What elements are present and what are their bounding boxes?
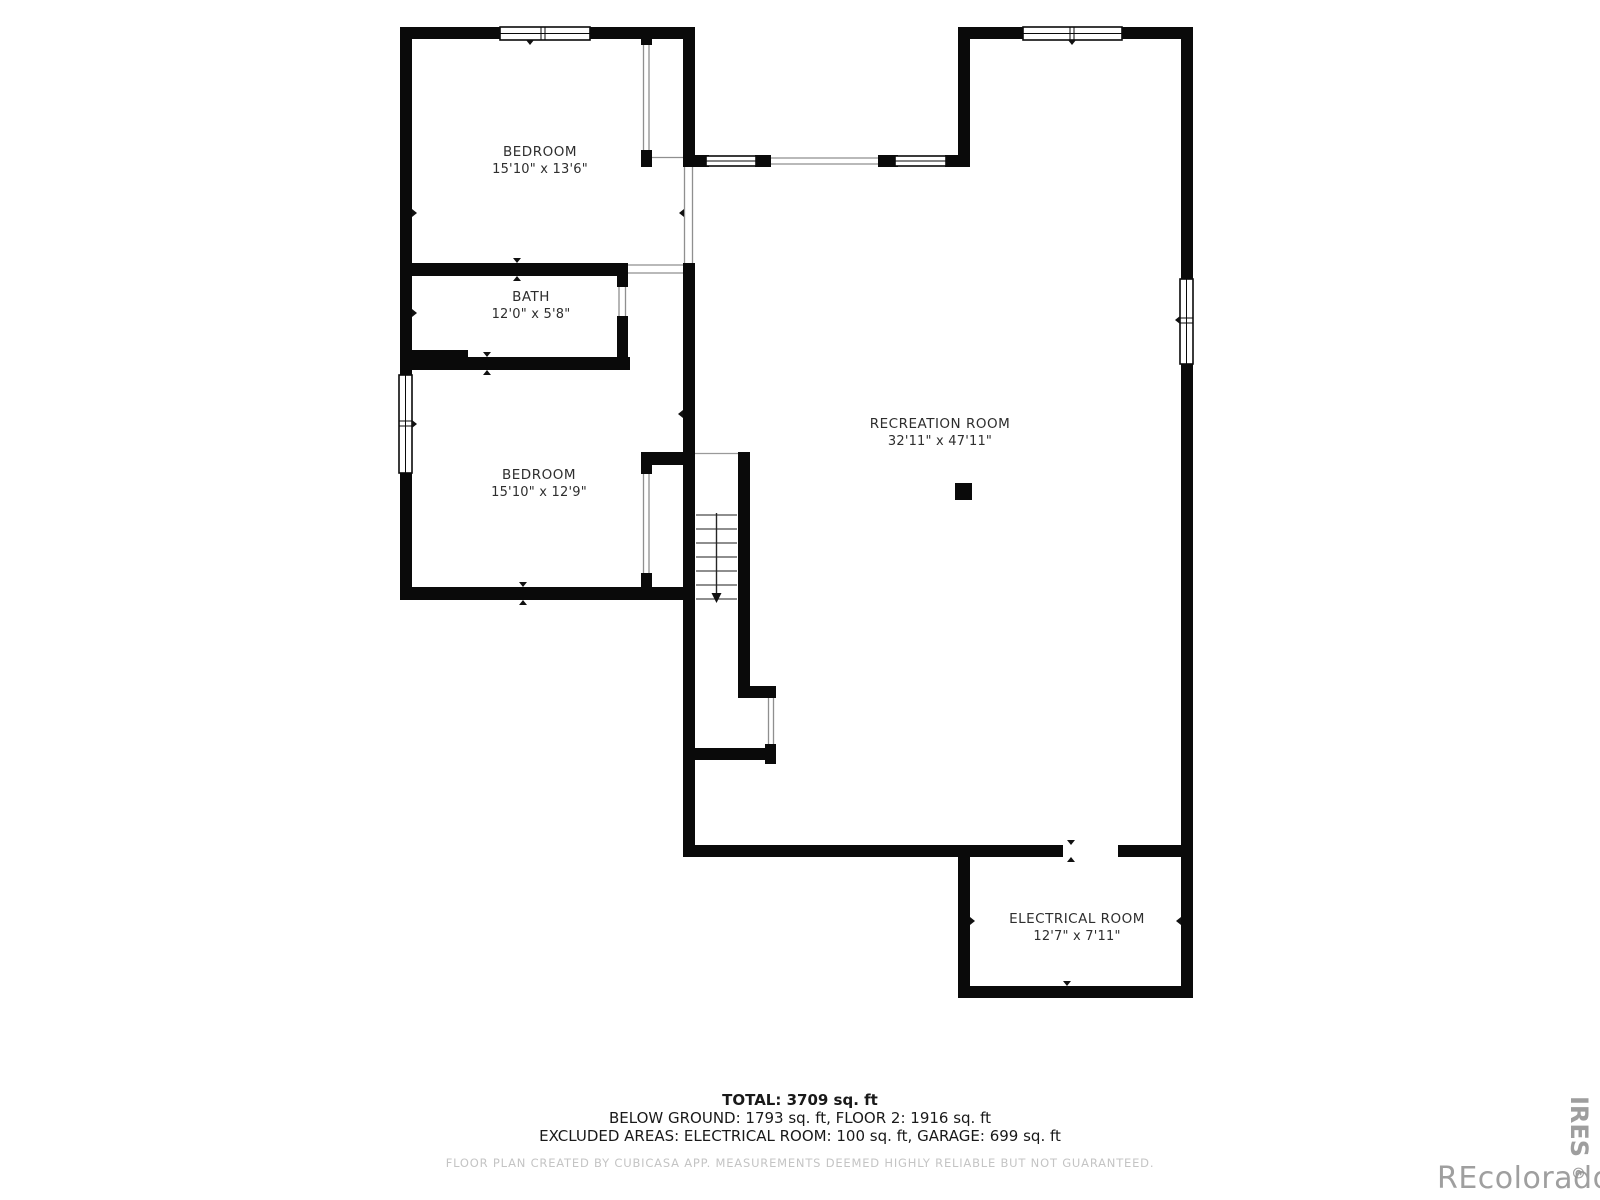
ires-watermark-text: IRES (1565, 1096, 1593, 1157)
marker-icon (519, 600, 527, 605)
wall-segment (641, 150, 652, 167)
floor-plan-canvas: BEDROOM 15'10" x 13'6" BATH 12'0" x 5'8"… (0, 0, 1600, 1200)
marker-icon (1067, 840, 1075, 845)
ires-watermark: IRES © (1565, 1096, 1593, 1180)
wall-segment (683, 748, 768, 760)
marker-icon (678, 410, 683, 418)
wall-segment (738, 452, 750, 698)
marker-icon (483, 352, 491, 357)
windows (399, 27, 1193, 473)
disclaimer-text: FLOOR PLAN CREATED BY CUBICASA APP. MEAS… (0, 1156, 1600, 1170)
marker-icon (519, 582, 527, 587)
copyright-icon: © (1569, 1165, 1587, 1180)
wall-segment (641, 27, 652, 45)
marker-icon (412, 209, 417, 217)
wall-segment (683, 263, 695, 857)
window (500, 27, 590, 40)
wall-segment (683, 155, 709, 167)
bedroom1-label: BEDROOM (503, 144, 577, 160)
excluded-areas-text: EXCLUDED AREAS: ELECTRICAL ROOM: 100 sq.… (0, 1127, 1600, 1145)
recreation-room-dimensions: 32'11" x 47'11" (888, 434, 992, 449)
electrical-room-dimensions: 12'7" x 7'11" (1033, 929, 1120, 944)
wall-segment (1118, 845, 1193, 857)
bath-label: BATH (512, 289, 550, 305)
wall-segment (400, 27, 412, 600)
marker-icon (483, 370, 491, 375)
wall-segment (683, 27, 695, 167)
wall-segment (945, 155, 970, 167)
wall-segment (400, 357, 630, 370)
window (399, 375, 412, 473)
wall-segment (617, 263, 628, 287)
staircase (696, 513, 737, 603)
marker-icon (412, 309, 417, 317)
wall-segment (765, 744, 776, 764)
bedroom2-label: BEDROOM (502, 467, 576, 483)
wall-segment (958, 986, 1193, 998)
bath-dimensions: 12'0" x 5'8" (492, 307, 571, 322)
area-summary: TOTAL: 3709 sq. ft BELOW GROUND: 1793 sq… (0, 1091, 1600, 1170)
stair-direction-arrow-icon (712, 593, 722, 603)
marker-icon (1175, 316, 1180, 324)
marker-icon (1176, 917, 1181, 925)
support-column (955, 483, 972, 500)
wall-segment (400, 263, 628, 276)
marker-icon (513, 276, 521, 281)
window (1023, 27, 1122, 40)
marker-icon (1068, 40, 1076, 45)
marker-icon (1067, 857, 1075, 862)
wall-segment (641, 452, 652, 474)
total-area-text: TOTAL: 3709 sq. ft (0, 1091, 1600, 1109)
wall-segment (958, 27, 970, 167)
marker-icon (513, 258, 521, 263)
marker-icon (1063, 981, 1071, 986)
bedroom1-dimensions: 15'10" x 13'6" (492, 162, 588, 177)
bedroom2-dimensions: 15'10" x 12'9" (491, 485, 587, 500)
wall-segment (958, 849, 970, 998)
floor-areas-text: BELOW GROUND: 1793 sq. ft, FLOOR 2: 1916… (0, 1109, 1600, 1127)
window (1180, 279, 1193, 364)
wall-segment (755, 155, 771, 167)
direction-markers (412, 40, 1181, 986)
window (706, 156, 756, 166)
window (895, 156, 946, 166)
marker-icon (970, 917, 975, 925)
recreation-room-label: RECREATION ROOM (870, 416, 1010, 432)
marker-icon (412, 420, 417, 428)
marker-icon (679, 209, 684, 217)
wall-segment (400, 587, 695, 600)
floor-plan-page: BEDROOM 15'10" x 13'6" BATH 12'0" x 5'8"… (0, 0, 1600, 1200)
marker-icon (526, 40, 534, 45)
wall-segment (683, 845, 1063, 857)
electrical-room-label: ELECTRICAL ROOM (1009, 911, 1145, 927)
wall-segment (738, 686, 776, 698)
